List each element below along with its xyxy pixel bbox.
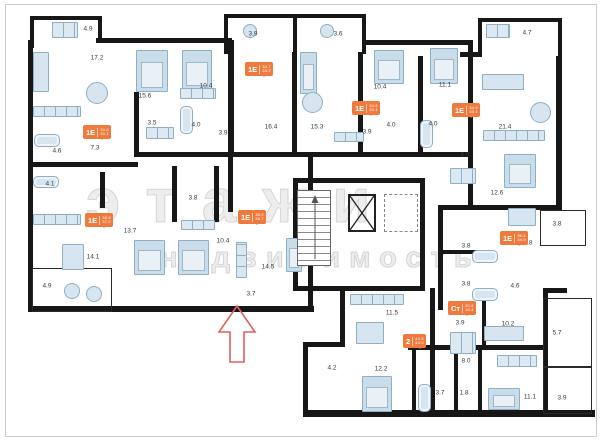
- balcony-outline: [543, 366, 592, 414]
- room-area-label: 10.4: [374, 84, 387, 91]
- wall: [28, 162, 138, 167]
- room-area-label: 3.9: [362, 129, 371, 136]
- room-area-label: 5.7: [552, 330, 561, 337]
- furniture-strip: [350, 294, 404, 305]
- apartment-type-label: 1Е: [502, 234, 515, 243]
- room-area-label: 3.7: [435, 390, 444, 397]
- floor-plan: этажи недвижимость 4.93.93.64.717.215.61…: [0, 0, 601, 440]
- room-area-label: 4.0: [428, 121, 437, 128]
- furniture-bed: [134, 240, 165, 275]
- furniture-bed: [374, 50, 404, 84]
- room-area-label: 11.5: [386, 310, 398, 317]
- apartment-type-label: 1Е: [85, 128, 98, 137]
- room-area-label: 3.9: [218, 130, 227, 137]
- room-area-label: 14.1: [87, 254, 100, 261]
- furniture-tableC: [64, 283, 80, 299]
- apartment-tag[interactable]: 1Е34.733.2: [245, 62, 273, 76]
- room-area-label: 12.2: [375, 366, 388, 373]
- room-area-label: 3.9: [248, 31, 257, 38]
- furniture-bed: [136, 50, 168, 92]
- furniture-sofa: [62, 244, 84, 270]
- room-area-label: 6.6: [460, 152, 469, 159]
- apartment-tag[interactable]: 1Е34.633.1: [352, 101, 380, 115]
- apartment-tag[interactable]: Ст20.919.4: [448, 301, 476, 315]
- furniture-tub: [180, 106, 193, 134]
- room-area-label: 4.0: [191, 122, 200, 129]
- wall: [292, 52, 297, 156]
- furniture-bed: [430, 48, 458, 84]
- room-area-label: 3.9: [455, 320, 464, 327]
- wall: [96, 38, 232, 43]
- wall: [408, 345, 544, 350]
- room-area-label: 12.6: [491, 190, 504, 197]
- furniture-tableC: [86, 286, 102, 302]
- furniture-tableR: [508, 208, 536, 226]
- room-area-label: 1.8: [459, 390, 468, 397]
- wall: [558, 18, 562, 60]
- wall: [420, 178, 425, 290]
- wall: [100, 172, 105, 208]
- wall: [293, 286, 425, 291]
- room-area-label: 4.9: [42, 283, 51, 290]
- furniture-tub: [472, 288, 498, 301]
- room-area-label: 3.8: [552, 221, 561, 228]
- furniture-sq: [181, 220, 215, 230]
- apartment-areas: 38.236.7: [253, 213, 264, 222]
- wall: [303, 342, 345, 347]
- furniture-tableC: [530, 102, 551, 123]
- furniture-strip: [334, 132, 364, 142]
- room-area-label: 13.7: [124, 228, 137, 235]
- entrance-arrow: [218, 304, 258, 366]
- furniture-tableC: [302, 92, 323, 113]
- wall: [478, 18, 562, 22]
- room-area-label: 10.4: [200, 83, 213, 90]
- wall: [340, 288, 345, 346]
- apartment-type-label: 1Е: [354, 104, 367, 113]
- furniture-tableR: [356, 322, 384, 344]
- furniture-strip: [33, 214, 81, 225]
- apartment-areas: 34.933.4: [467, 106, 478, 115]
- wall: [293, 14, 297, 54]
- room-area-label: 17.2: [91, 55, 104, 62]
- apartment-areas: 34.633.1: [98, 128, 109, 137]
- room-area-label: 4.9: [83, 26, 92, 33]
- wall: [454, 350, 458, 410]
- furniture-sofa: [33, 52, 49, 92]
- room-area-label: 3.7: [246, 291, 255, 298]
- apartment-type-label: Ст: [450, 304, 463, 313]
- furniture-sq: [52, 22, 78, 38]
- balcony-outline: [540, 210, 586, 246]
- room-area-label: 4.1: [45, 181, 54, 188]
- furniture-sofa: [482, 74, 524, 90]
- apartment-type-label: 2: [405, 337, 413, 346]
- room-area-label: 10.2: [502, 321, 515, 328]
- furniture-bed: [504, 154, 536, 188]
- furniture-sq: [497, 355, 537, 367]
- furniture-tub: [472, 250, 498, 263]
- furniture-sq: [146, 127, 174, 139]
- wall: [134, 92, 139, 156]
- wall: [98, 16, 102, 40]
- apartment-areas: 20.919.4: [463, 304, 474, 313]
- apartment-tag[interactable]: 1Е34.933.4: [452, 103, 480, 117]
- apartment-tag[interactable]: 1Е38.236.7: [238, 210, 266, 224]
- furniture-tableC: [320, 24, 334, 38]
- apartment-areas: 38.537.0: [100, 216, 111, 225]
- wall: [362, 14, 366, 54]
- apartment-tag[interactable]: 244.543.0: [403, 334, 426, 348]
- room-area-label: 3.5: [147, 120, 156, 127]
- apartment-areas: 36.434.9: [515, 234, 526, 243]
- room-area-label: 3.8: [188, 195, 197, 202]
- furniture-sq: [450, 332, 476, 354]
- staircase-up-arrow: [310, 193, 320, 263]
- furniture-sq: [450, 168, 476, 184]
- wall: [30, 16, 102, 20]
- room-area-label: 3.8: [461, 281, 470, 288]
- room-area-label: 3.6: [333, 31, 342, 38]
- room-area-label: 4.6: [52, 148, 61, 155]
- wall: [362, 40, 472, 45]
- wall: [303, 342, 308, 416]
- apartment-tag[interactable]: 1Е36.434.9: [500, 231, 528, 245]
- wall: [556, 56, 562, 208]
- room-area-label: 14.5: [262, 264, 275, 271]
- room-area-label: 15.6: [139, 93, 152, 100]
- wall: [438, 205, 443, 310]
- room-area-label: 7.3: [90, 145, 99, 152]
- room-area-label: 4.0: [386, 122, 395, 129]
- apartment-tag[interactable]: 1Е38.537.0: [85, 213, 113, 227]
- furniture-sq: [486, 24, 510, 38]
- furniture-bed: [488, 388, 520, 410]
- shaft-dashed-box: [384, 194, 418, 232]
- room-area-label: 11.1: [439, 82, 451, 89]
- wall: [478, 350, 482, 410]
- apartment-areas: 44.543.0: [413, 337, 424, 346]
- wall: [172, 166, 177, 222]
- room-area-label: 4.7: [522, 30, 531, 37]
- furniture-bed: [178, 240, 209, 275]
- furniture-tub: [418, 384, 431, 412]
- wall: [134, 152, 470, 157]
- wall: [228, 40, 234, 156]
- room-area-label: 3.8: [461, 243, 470, 250]
- room-area-label: 10.4: [217, 238, 230, 245]
- apartment-type-label: 1Е: [240, 213, 253, 222]
- wall: [293, 178, 425, 183]
- furniture-sofa: [484, 326, 524, 341]
- apartment-areas: 34.633.1: [367, 104, 378, 113]
- apartment-type-label: 1Е: [247, 65, 260, 74]
- room-area-label: 3.9: [557, 395, 566, 402]
- furniture-tub: [34, 134, 60, 147]
- furniture-bed: [362, 376, 392, 412]
- apartment-areas: 34.733.2: [260, 65, 271, 74]
- balcony-outline: [543, 298, 592, 368]
- apartment-type-label: 1Е: [454, 106, 467, 115]
- apartment-type-label: 1Е: [87, 216, 100, 225]
- elevator-shaft: [348, 194, 376, 232]
- apartment-tag[interactable]: 1Е34.633.1: [83, 125, 111, 139]
- furniture-bed: [300, 52, 317, 94]
- wall: [478, 18, 482, 56]
- room-area-label: 8.0: [461, 358, 470, 365]
- room-area-label: 15.3: [311, 124, 324, 131]
- room-area-label: 16.4: [265, 124, 278, 131]
- room-area-label: 4.2: [327, 365, 336, 372]
- furniture-strip: [33, 106, 81, 117]
- room-area-label: 21.4: [499, 124, 512, 131]
- furniture-sq: [180, 88, 216, 99]
- wall: [412, 350, 416, 410]
- room-area-label: 4.6: [510, 283, 519, 290]
- furniture-tableC: [86, 82, 108, 104]
- wall: [228, 156, 233, 212]
- wall: [214, 166, 219, 222]
- furniture-strip: [483, 130, 545, 141]
- room-area-label: 11.1: [524, 394, 536, 401]
- furniture-stripV: [236, 242, 247, 278]
